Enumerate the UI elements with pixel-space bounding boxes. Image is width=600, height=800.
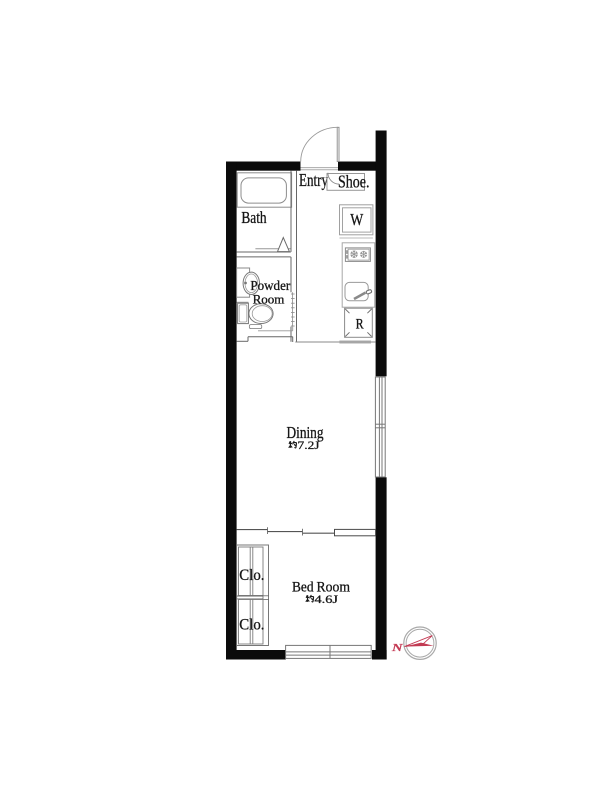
svg-text:Clo.: Clo. (239, 566, 264, 584)
svg-text:7.2J: 7.2J (298, 438, 320, 452)
svg-text:R: R (356, 317, 364, 333)
svg-text:Shoe.: Shoe. (338, 171, 370, 191)
svg-text:Bath: Bath (241, 208, 267, 227)
svg-text:Bed: Bed (292, 578, 314, 595)
svg-text:N: N (391, 643, 403, 654)
svg-text:Room: Room (253, 292, 285, 306)
svg-text:W: W (350, 210, 364, 229)
svg-text:Clo.: Clo. (239, 616, 264, 634)
svg-text:Entry: Entry (299, 170, 328, 190)
svg-text:4.6J: 4.6J (315, 592, 339, 606)
